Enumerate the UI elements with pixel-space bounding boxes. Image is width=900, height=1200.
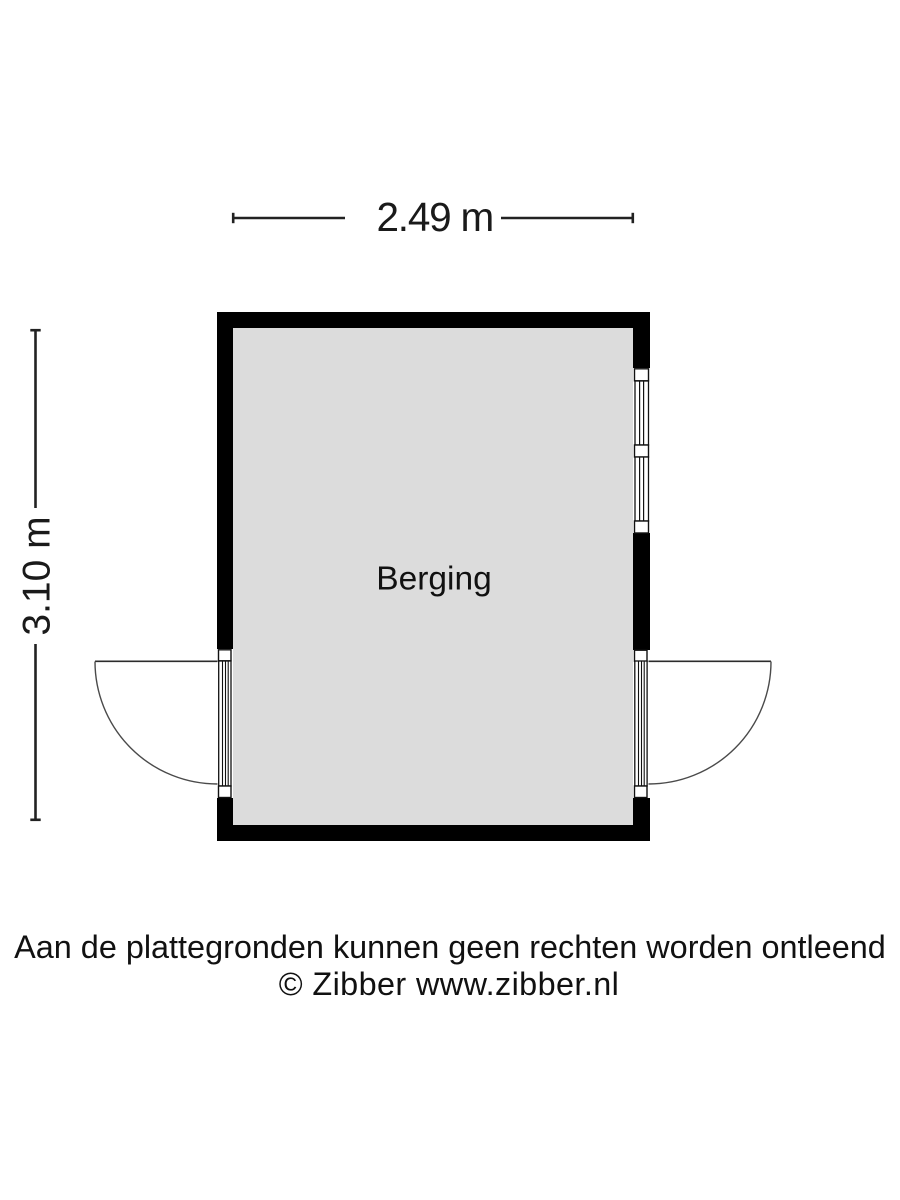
- svg-text:2.49 m: 2.49 m: [376, 194, 493, 240]
- svg-text:Aan de plattegronden kunnen ge: Aan de plattegronden kunnen geen rechten…: [14, 929, 886, 965]
- svg-text:Berging: Berging: [376, 561, 491, 598]
- svg-text:3.10 m: 3.10 m: [16, 516, 59, 635]
- svg-text:© Zibber www.zibber.nl: © Zibber www.zibber.nl: [279, 966, 620, 1002]
